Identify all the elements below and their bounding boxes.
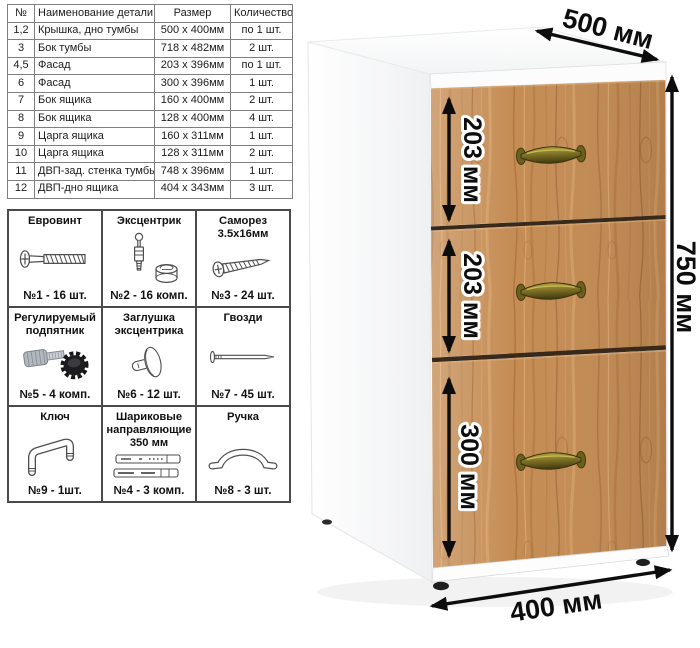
dim-drawer3-label: 300 мм — [455, 424, 483, 510]
dim-drawer1-label: 203 мм — [458, 117, 486, 203]
floor-shadow — [317, 577, 673, 607]
cabinet-foot — [433, 582, 449, 590]
cabinet-foot — [322, 519, 332, 524]
cabinet-right-edge — [666, 80, 667, 546]
dim-height-label: 750 мм — [671, 241, 700, 334]
dim-drawer2-label: 203 мм — [458, 253, 486, 339]
cabinet-side-panel — [308, 42, 432, 582]
cabinet-illustration: 500 мм 750 мм 400 мм 203 мм 203 мм 300 м… — [0, 0, 700, 648]
cabinet-body — [308, 27, 669, 590]
cabinet-foot — [636, 559, 650, 566]
